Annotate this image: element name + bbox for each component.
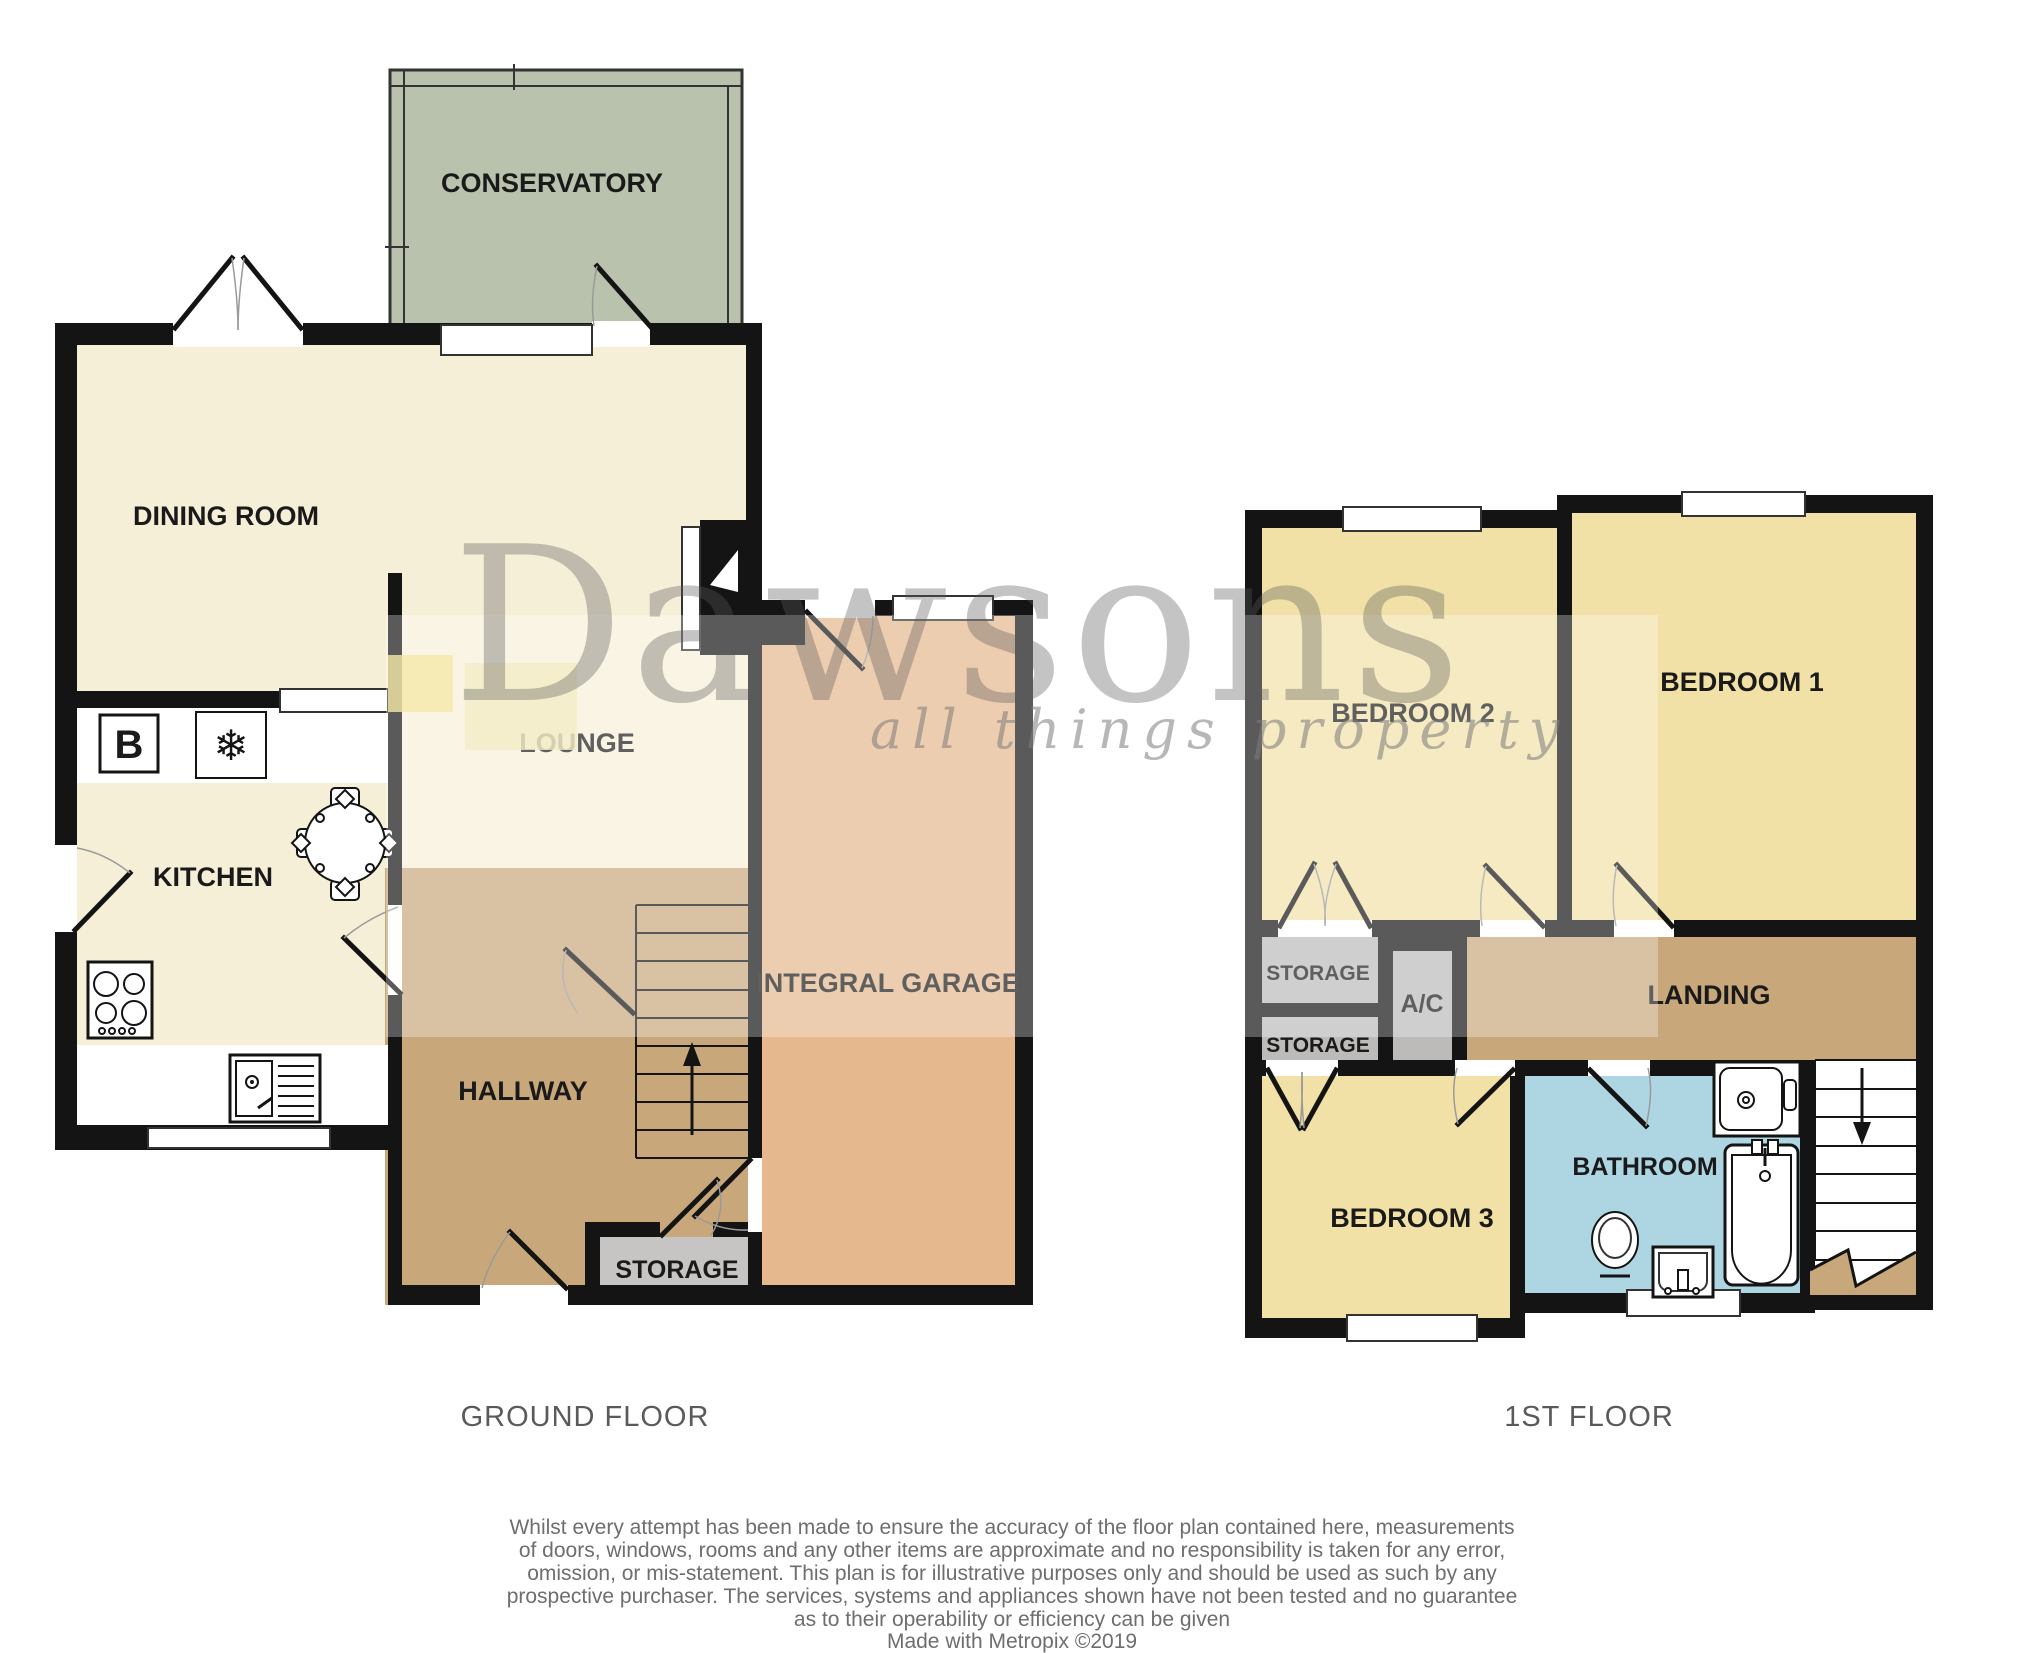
kitchen-hatch [280,689,388,712]
boiler-icon: B [100,715,158,772]
disclaimer-line: of doors, windows, rooms and any other i… [519,1539,1505,1562]
label-bedroom1: BEDROOM 1 [1660,667,1824,697]
conservatory-floor [390,70,742,330]
hob-icon [88,962,152,1038]
label-storage-bottom: STORAGE [1266,1034,1369,1057]
window-bedroom1 [1682,492,1805,516]
label-landing: LANDING [1648,980,1771,1010]
label-dining-room: DINING ROOM [133,501,319,531]
svg-text:❄: ❄ [213,721,248,770]
freezer-icon: ❄ [196,712,266,778]
sink-icon [230,1055,320,1122]
caption-first-floor: 1ST FLOOR [1504,1401,1674,1433]
svg-text:B: B [115,723,144,767]
label-bathroom: BATHROOM [1572,1153,1717,1181]
disclaimer-line: as to their operability or efficiency ca… [794,1608,1230,1631]
bathtub-icon [1725,1140,1798,1285]
metropix-credit: Made with Metropix ©2019 [887,1630,1137,1653]
window-kitchen [148,1128,330,1148]
basin-icon [1653,1247,1713,1297]
label-conservatory: CONSERVATORY [441,168,663,198]
stairs-down-arrow-icon [1853,1068,1871,1145]
disclaimer: Whilst every attempt has been made to en… [507,1516,1518,1653]
label-storage-ground: STORAGE [615,1256,738,1284]
floorplan-page: B ❄ [0,0,2025,1653]
label-kitchen: KITCHEN [153,862,273,892]
shower-icon [1714,1062,1800,1136]
disclaimer-line: Whilst every attempt has been made to en… [509,1516,1514,1539]
disclaimer-line: omission, or mis-statement. This plan is… [527,1562,1497,1585]
disclaimer-line: prospective purchaser. The services, sys… [507,1585,1518,1608]
stairs-break-fill [1810,1250,1916,1295]
window-dining-conservatory [441,325,592,355]
watermark-gold-square-small [388,655,453,712]
label-bedroom3: BEDROOM 3 [1330,1203,1494,1233]
floorplan-drawing: B ❄ [0,0,2025,1653]
watermark-tagline-text: all things property [870,698,1569,761]
stairs-down [1810,1060,1916,1295]
window-bedroom3 [1347,1315,1477,1341]
caption-ground-floor: GROUND FLOOR [461,1401,710,1433]
label-hallway: HALLWAY [458,1076,588,1106]
